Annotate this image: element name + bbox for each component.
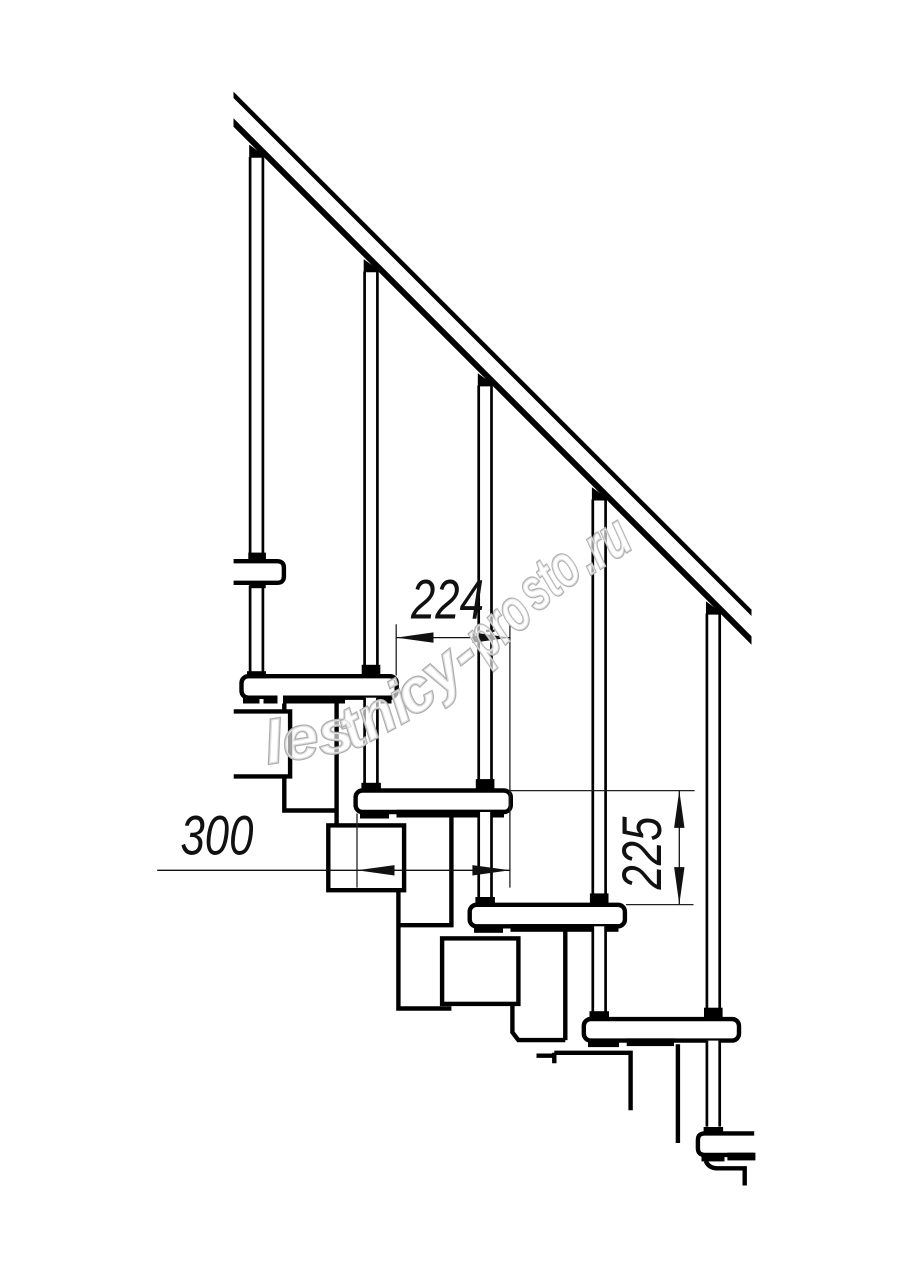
svg-text:225: 225: [611, 816, 673, 891]
svg-text:300: 300: [181, 804, 254, 866]
